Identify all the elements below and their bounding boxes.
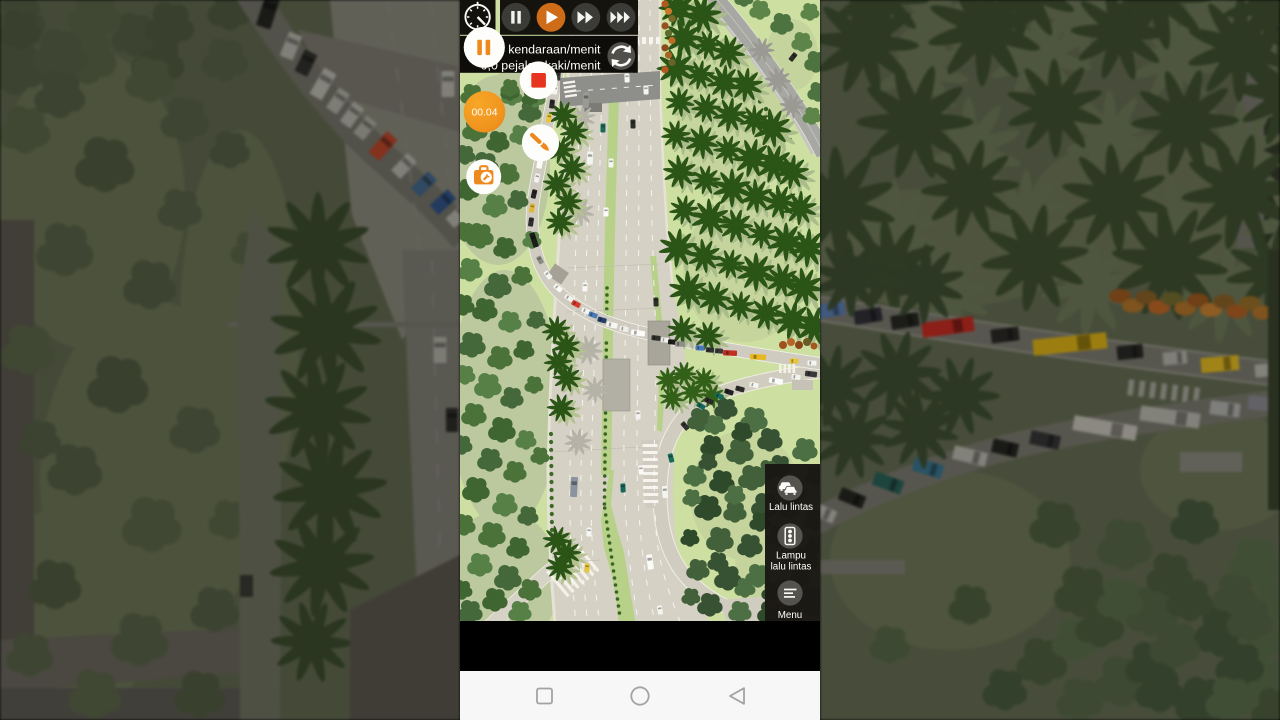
svg-text:Menu: Menu (778, 610, 803, 621)
svg-text:00.04: 00.04 (471, 108, 497, 119)
svg-text:kendaraan/menit: kendaraan/menit (508, 43, 601, 57)
svg-text:Lalu lintas: Lalu lintas (769, 502, 813, 513)
svg-text:lalu lintas: lalu lintas (771, 562, 812, 573)
svg-text:Lampu: Lampu (776, 551, 806, 562)
